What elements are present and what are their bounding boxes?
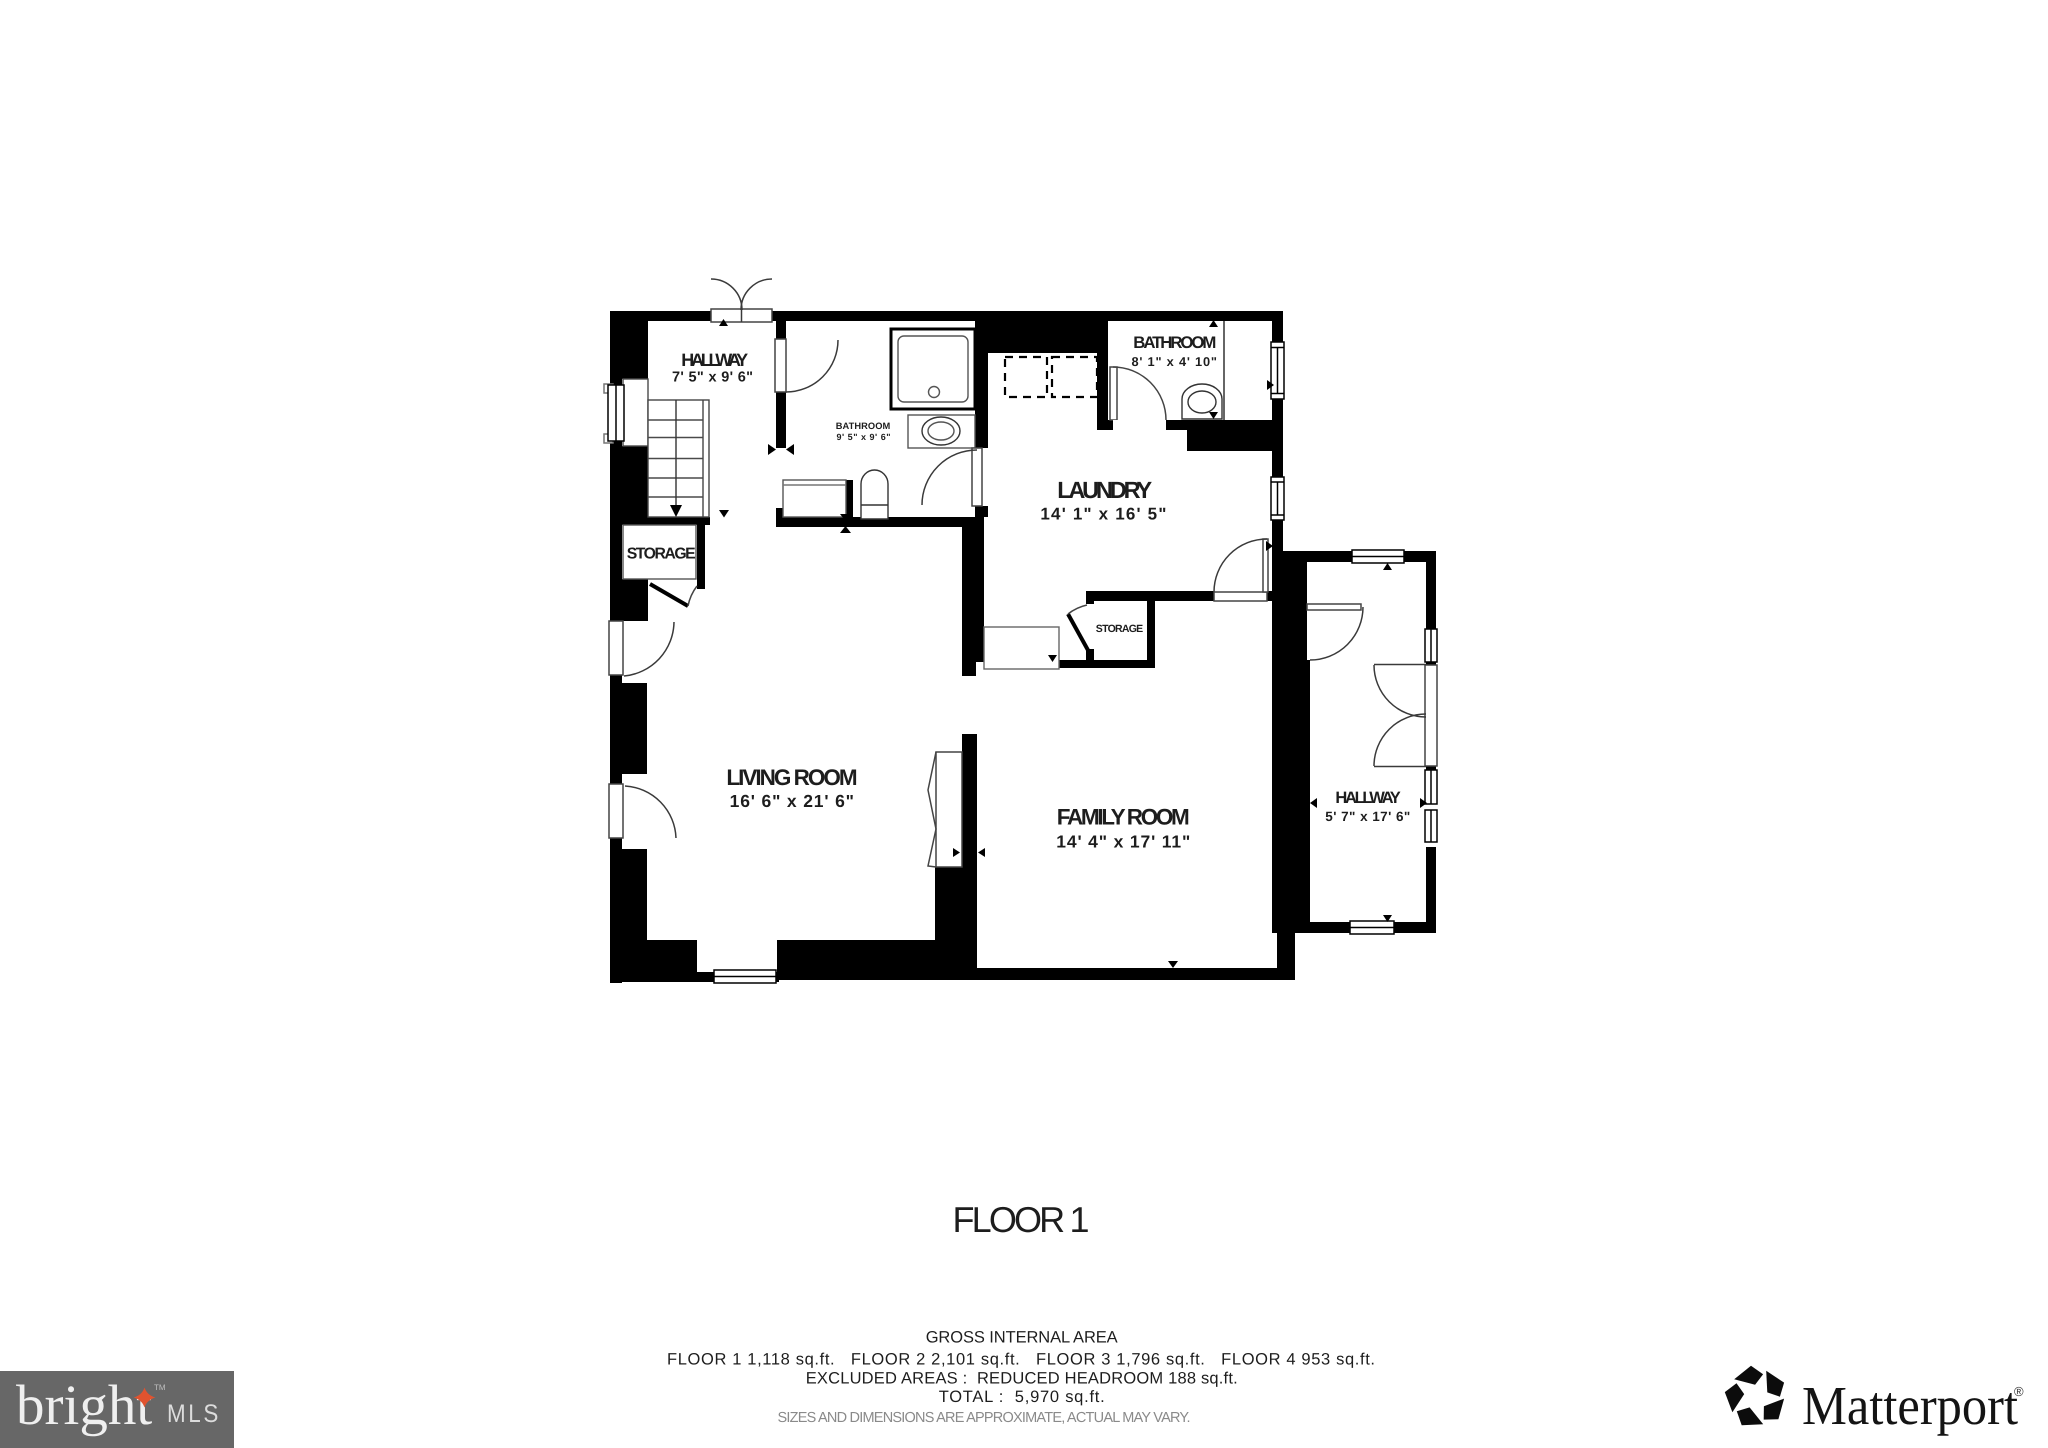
svg-text:bright: bright xyxy=(16,1374,152,1437)
svg-text:TM: TM xyxy=(154,1383,166,1392)
svg-text:BATHROOM: BATHROOM xyxy=(836,421,891,431)
svg-text:EXCLUDED AREAS : REDUCED HEAD: EXCLUDED AREAS : REDUCED HEADROOM 188 sq… xyxy=(806,1370,1238,1388)
svg-text:14' 4" x 17' 11": 14' 4" x 17' 11" xyxy=(1056,832,1190,852)
svg-text:LAUNDRY: LAUNDRY xyxy=(1057,477,1152,503)
svg-text:STORAGE: STORAGE xyxy=(627,546,696,563)
svg-text:7' 5" x 9' 6": 7' 5" x 9' 6" xyxy=(672,370,753,386)
svg-text:FLOOR 1 1,118 sq.ft. FLOOR 2: FLOOR 1 1,118 sq.ft. FLOOR 2 2,101 sq.ft… xyxy=(667,1351,1375,1369)
svg-text:FLOOR 1: FLOOR 1 xyxy=(953,1199,1090,1240)
svg-text:16' 6" x 21' 6": 16' 6" x 21' 6" xyxy=(730,791,854,811)
svg-text:STORAGE: STORAGE xyxy=(1096,623,1143,635)
svg-text:LIVING ROOM: LIVING ROOM xyxy=(726,765,857,790)
svg-text:®: ® xyxy=(2014,1384,2024,1399)
svg-text:GROSS INTERNAL AREA: GROSS INTERNAL AREA xyxy=(926,1329,1118,1347)
svg-text:5' 7" x 17' 6": 5' 7" x 17' 6" xyxy=(1325,809,1410,824)
svg-text:TOTAL : 5,970 sq.ft.: TOTAL : 5,970 sq.ft. xyxy=(939,1388,1105,1406)
svg-text:HALLWAY: HALLWAY xyxy=(1335,789,1400,807)
svg-text:9' 5" x 9' 6": 9' 5" x 9' 6" xyxy=(837,432,891,442)
svg-text:14' 1" x 16' 5": 14' 1" x 16' 5" xyxy=(1040,505,1166,524)
svg-text:8' 1" x 4' 10": 8' 1" x 4' 10" xyxy=(1131,354,1217,369)
svg-text:HALLWAY: HALLWAY xyxy=(681,350,748,370)
svg-text:SIZES AND DIMENSIONS ARE APPRO: SIZES AND DIMENSIONS ARE APPROXIMATE, AC… xyxy=(778,1410,1191,1426)
svg-text:BATHROOM: BATHROOM xyxy=(1133,333,1216,352)
svg-text:Matterport: Matterport xyxy=(1802,1375,2018,1436)
svg-text:MLS: MLS xyxy=(167,1400,221,1428)
svg-text:FAMILY ROOM: FAMILY ROOM xyxy=(1057,804,1190,829)
